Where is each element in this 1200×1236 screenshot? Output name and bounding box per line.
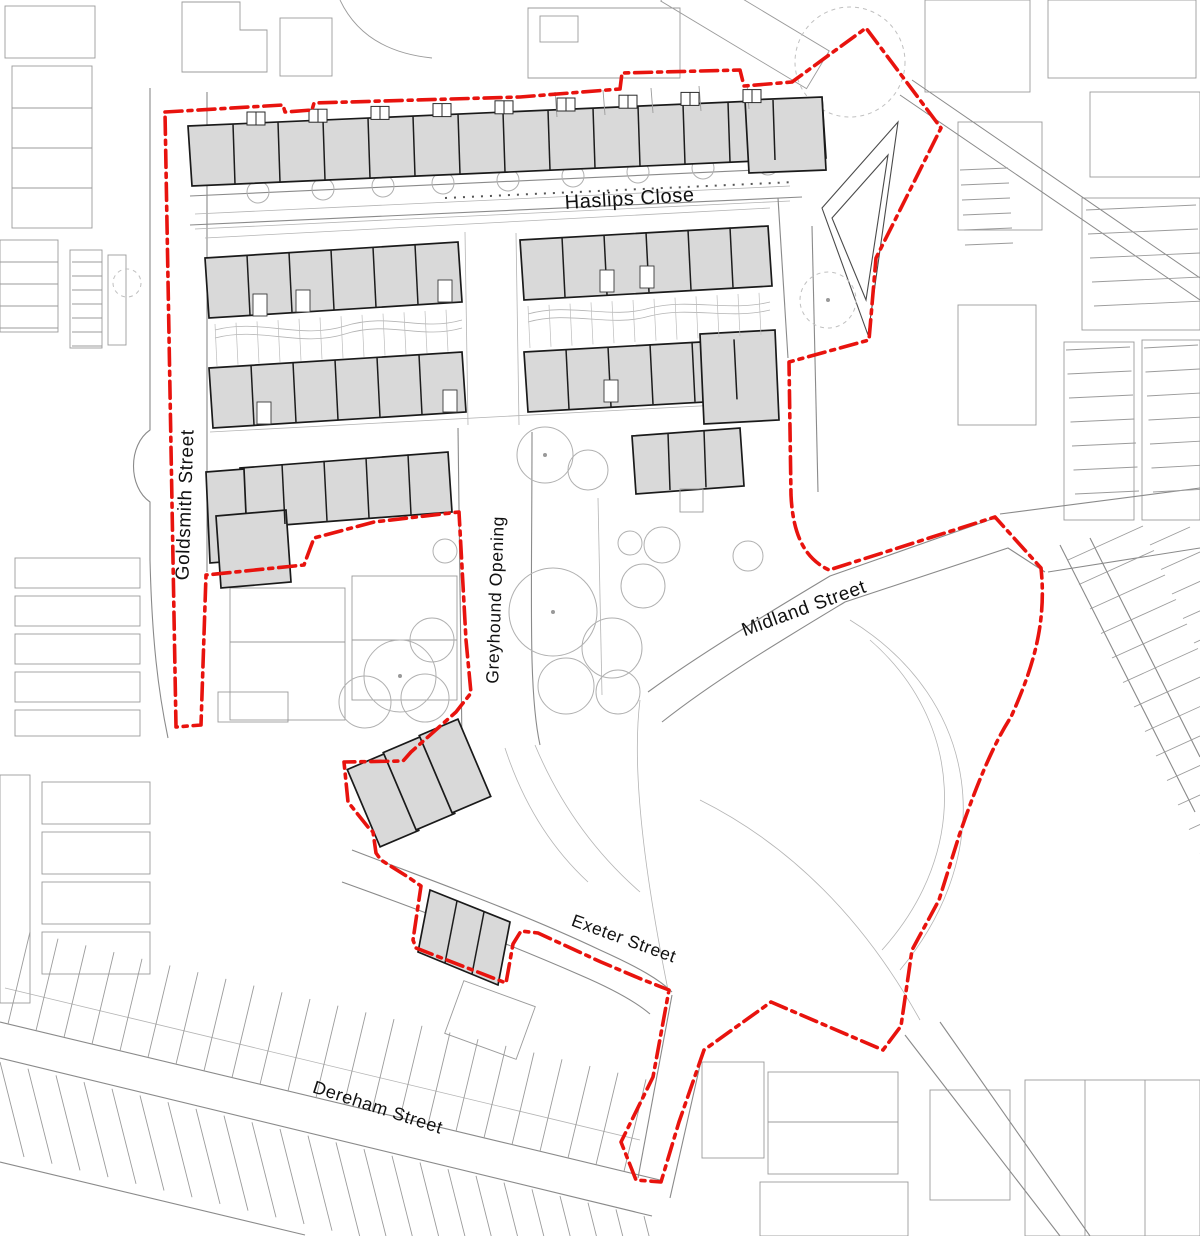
goldsmith-corner-block [216,510,291,588]
courtyard-block [632,428,744,494]
terrace-haslips-end-block [745,97,826,173]
street-label-midland-street: Midland Street [739,577,869,642]
exeter-street-block [418,890,510,985]
street-label-greyhound-opening: Greyhound Opening [482,516,508,684]
street-label-goldsmith-street: Goldsmith Street [172,429,198,581]
street-label-exeter-street: Exeter Street [569,910,679,966]
street-label-haslips-close: Haslips Close [564,184,695,214]
terrace-b-end-block [700,330,779,424]
street-labels: Haslips Close Goldsmith Street Greyhound… [172,184,869,1138]
context-buildings [0,0,1200,1236]
site-plan-drawing: Haslips Close Goldsmith Street Greyhound… [0,0,1200,1236]
site-plan-map: Haslips Close Goldsmith Street Greyhound… [0,0,1200,1236]
